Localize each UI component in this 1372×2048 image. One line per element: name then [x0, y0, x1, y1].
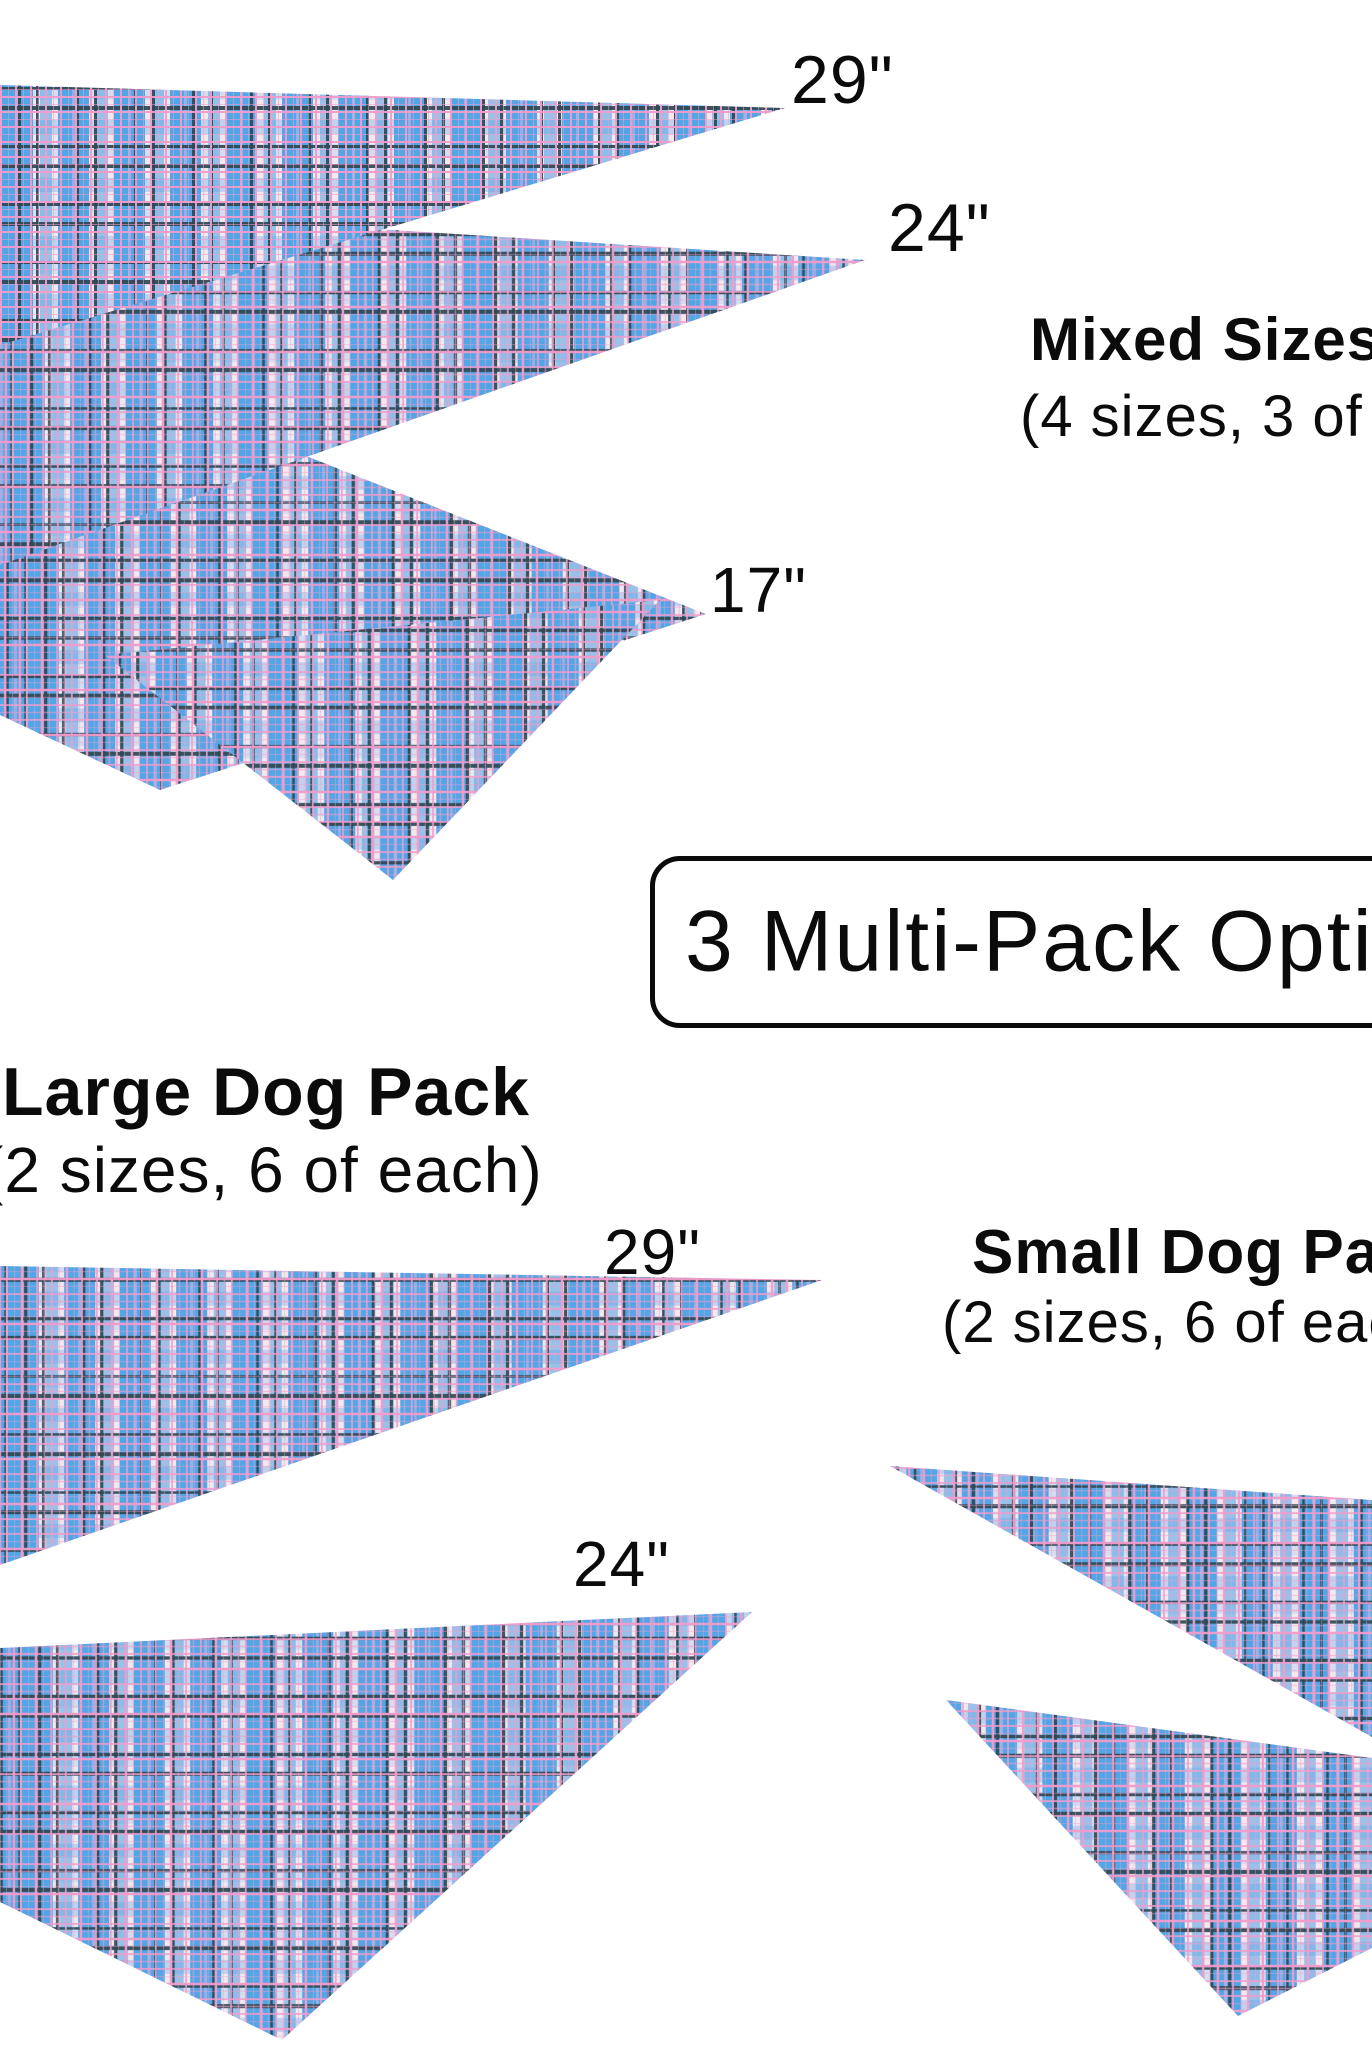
multi-pack-banner: 3 Multi-Pack Options — [650, 856, 1372, 1028]
small-pack-title: Small Dog Pack — [972, 1220, 1372, 1287]
size-label-mixed-29: 29" — [791, 44, 894, 117]
small-pack-subtitle: (2 sizes, 6 of each) — [942, 1292, 1372, 1355]
size-label-large-29: 29" — [604, 1218, 701, 1287]
mixed-pack-subtitle: (4 sizes, 3 of each) — [1020, 386, 1372, 449]
mixed-pack-title: Mixed Sizes — [1030, 308, 1372, 373]
multi-pack-banner-label: 3 Multi-Pack Options — [685, 893, 1372, 992]
size-label-mixed-24: 24" — [888, 192, 991, 265]
size-label-mixed-17: 17" — [710, 556, 807, 625]
large-pack-subtitle: (2 sizes, 6 of each) — [0, 1136, 543, 1205]
large-pack-title: Large Dog Pack — [2, 1056, 530, 1129]
size-label-large-24: 24" — [573, 1530, 670, 1599]
product-collage: 29" 24" 17" 29" 24" Mixed Sizes (4 sizes… — [0, 0, 1372, 2048]
